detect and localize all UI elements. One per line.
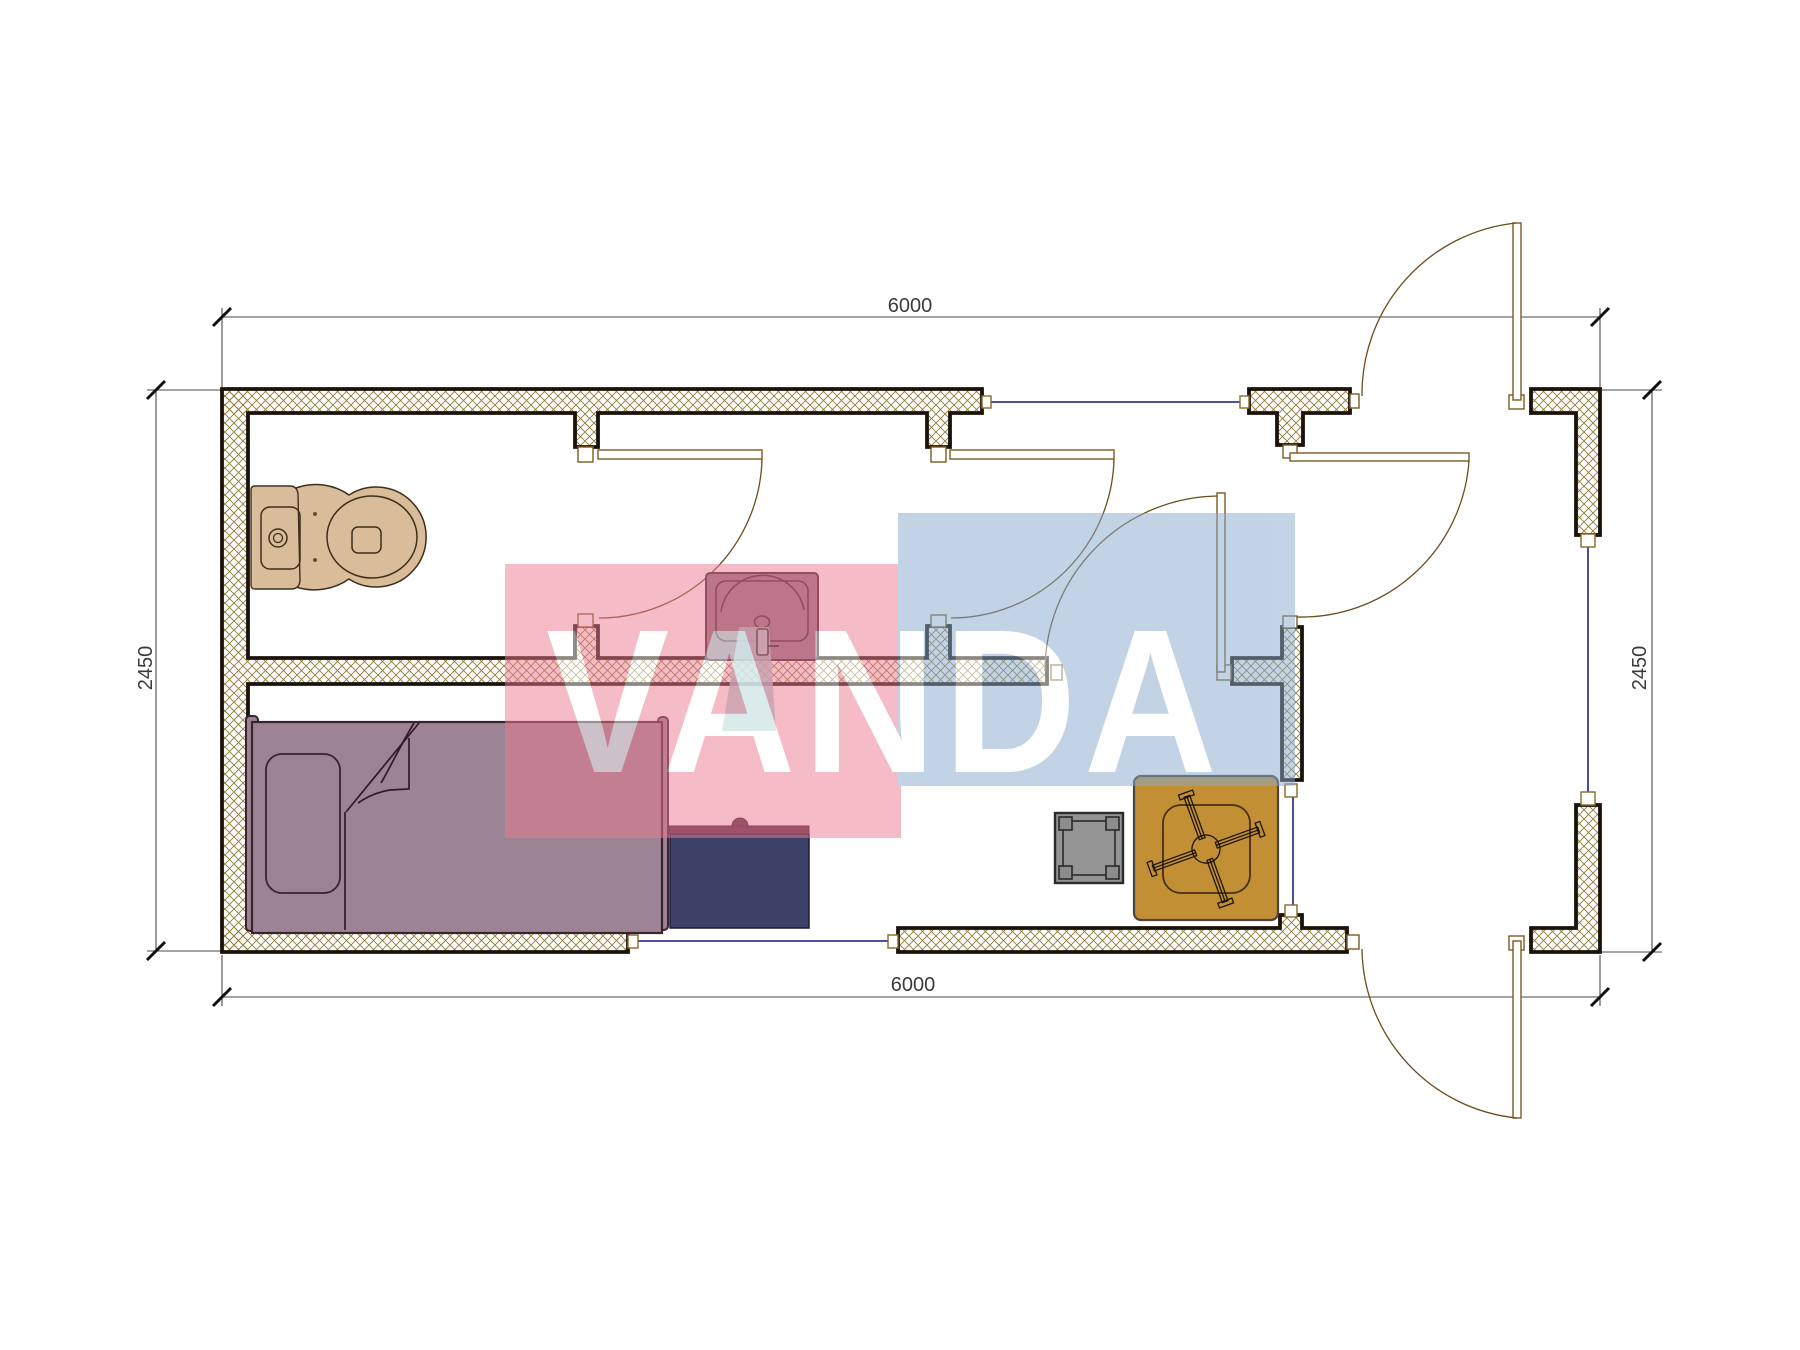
- svg-text:6000: 6000: [888, 295, 933, 317]
- svg-text:2450: 2450: [135, 646, 157, 691]
- svg-text:2450: 2450: [1629, 646, 1651, 691]
- svg-text:VANDA: VANDA: [546, 587, 1224, 816]
- svg-text:6000: 6000: [891, 974, 936, 996]
